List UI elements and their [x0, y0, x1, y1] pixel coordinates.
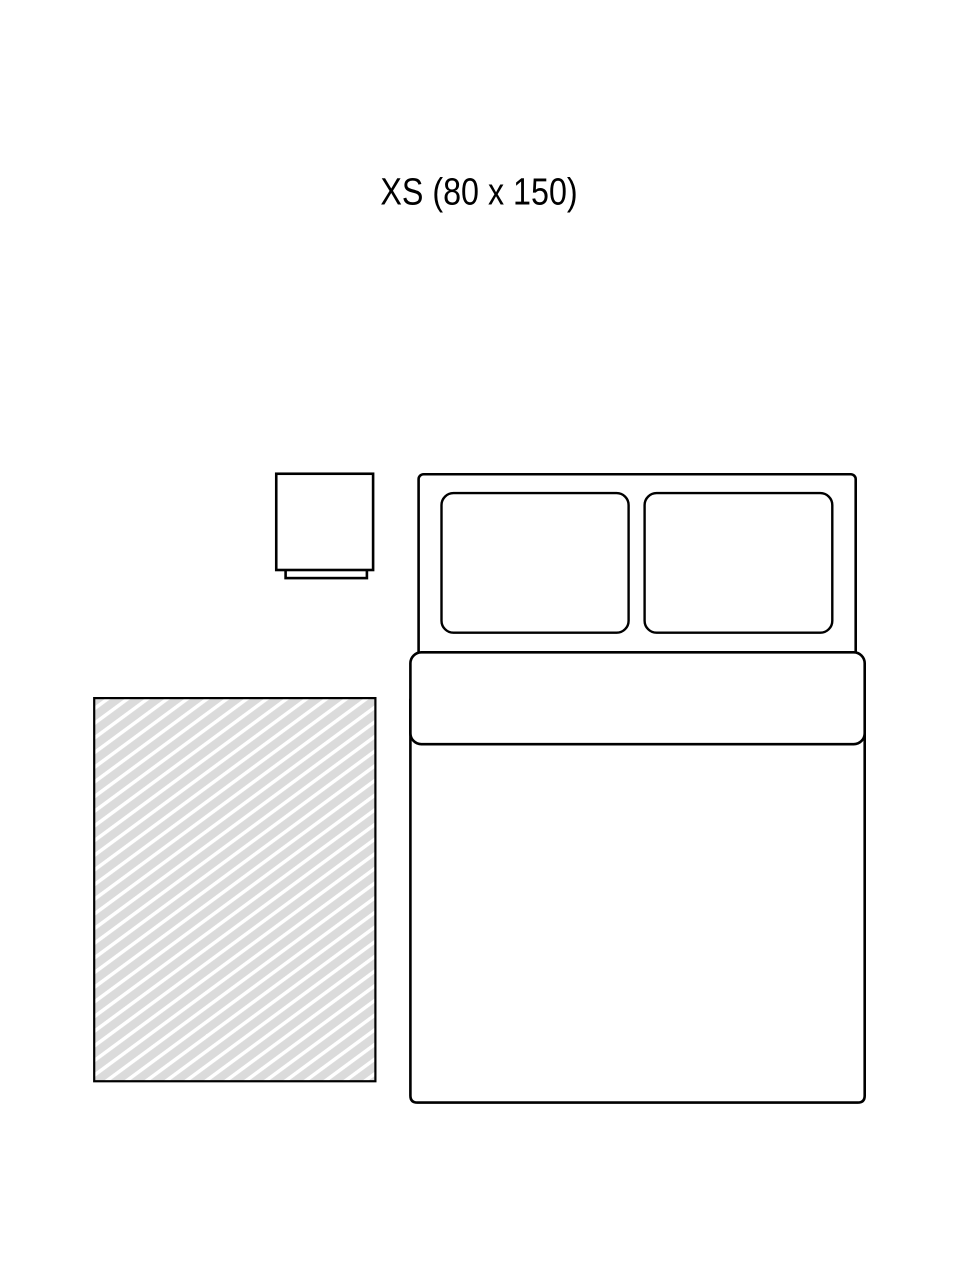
- svg-text:XS (80 x 150): XS (80 x 150): [380, 172, 577, 214]
